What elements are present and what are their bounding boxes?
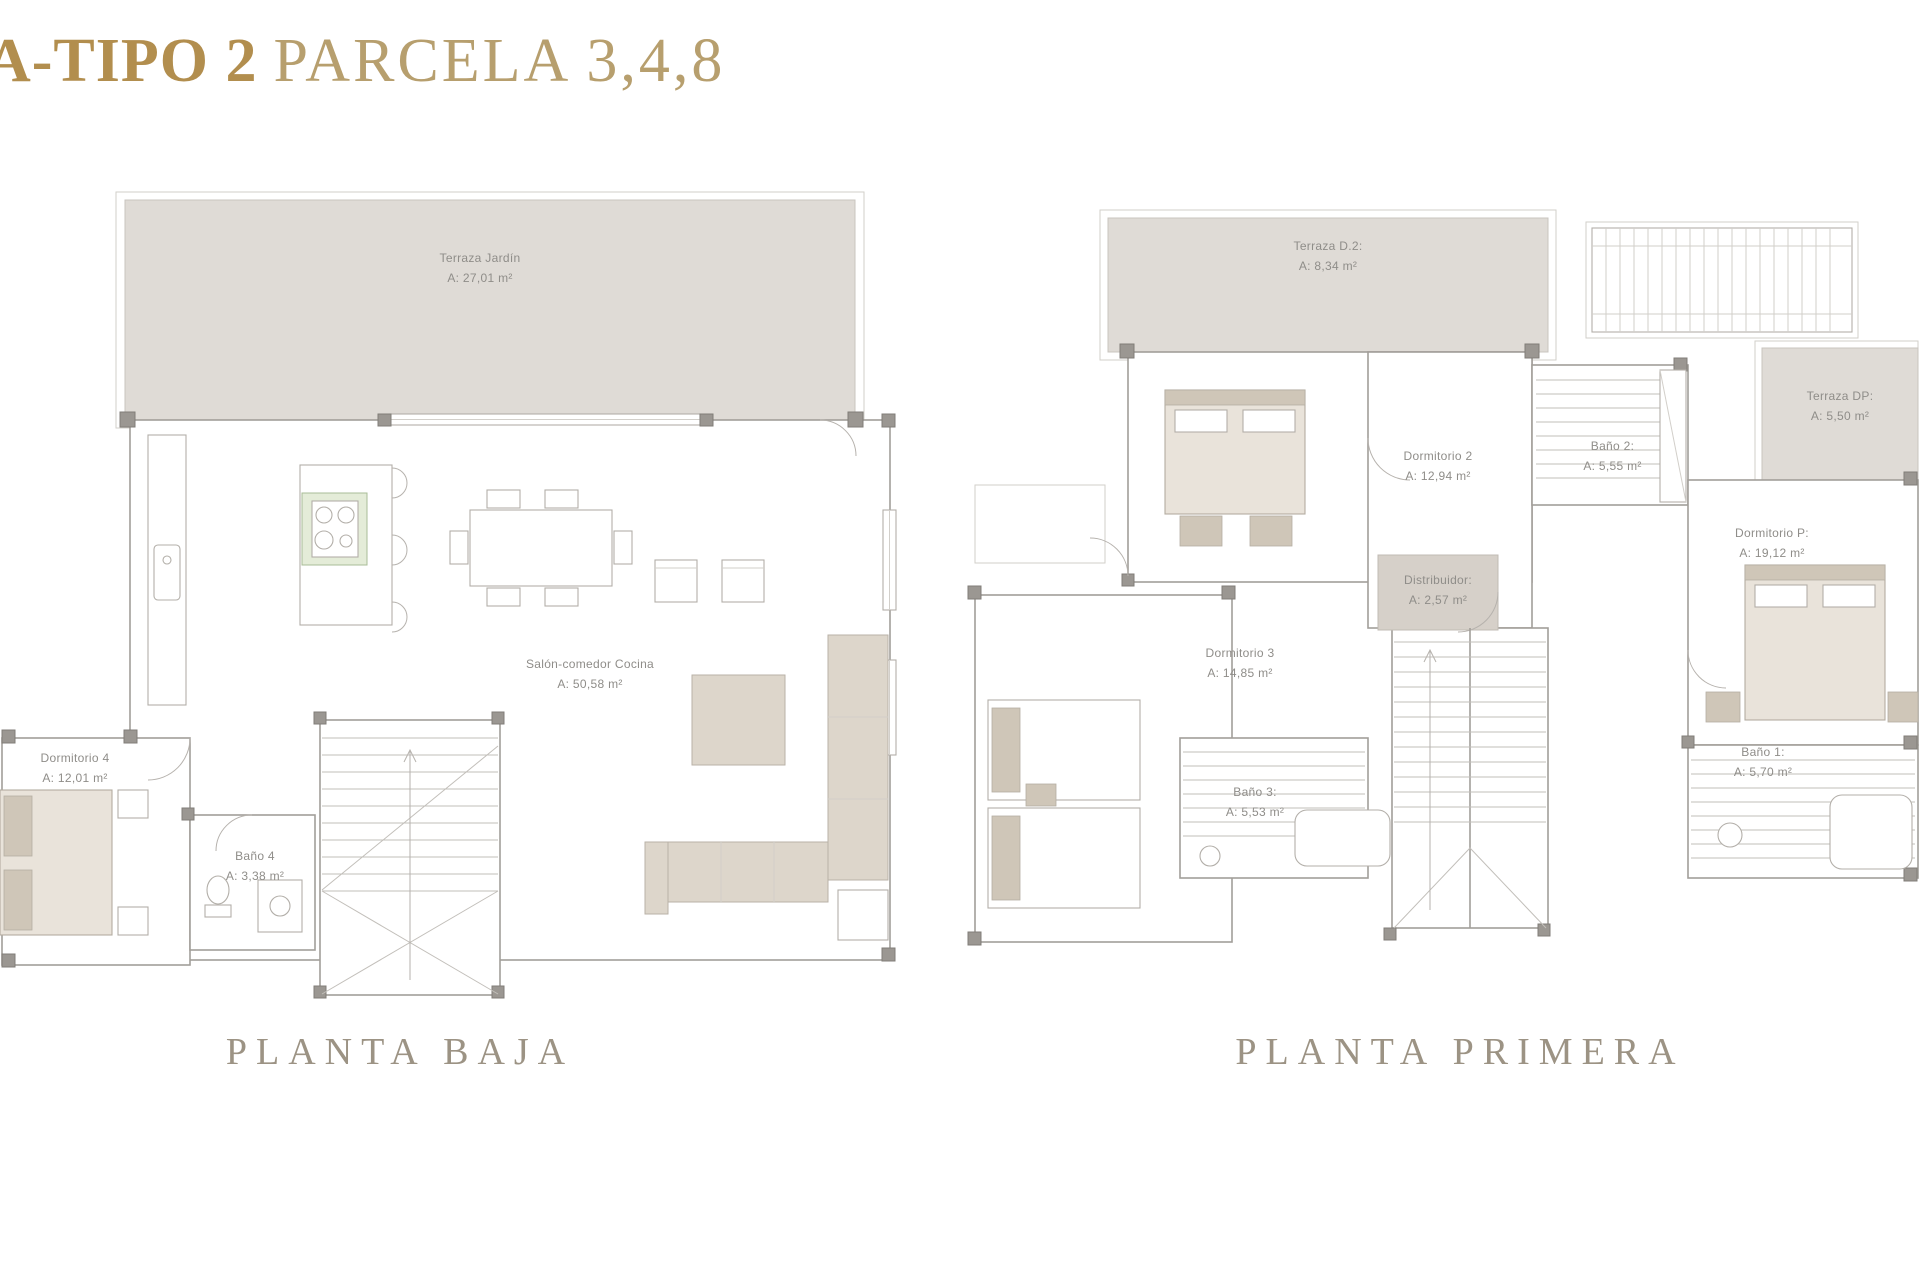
room-area: A: 19,12 m² [1739, 547, 1804, 560]
room-label-terraza-dp: Terraza DP: A: 5,50 m² [1765, 390, 1915, 423]
planta-baja-drawing [0, 190, 960, 1030]
room-name: Salón-comedor Cocina [526, 658, 654, 671]
room-area: A: 12,01 m² [42, 772, 107, 785]
room-label-terraza-jardin: Terraza Jardín A: 27,01 m² [390, 252, 570, 285]
floorplan-page: A-TIPO 2PARCELA 3,4,8 [0, 0, 1920, 1280]
page-title: A-TIPO 2PARCELA 3,4,8 [0, 26, 725, 97]
room-area: A: 2,57 m² [1409, 594, 1467, 607]
room-name: Terraza D.2: [1294, 240, 1363, 253]
room-area: A: 50,58 m² [557, 678, 622, 691]
room-name: Dormitorio 4 [41, 752, 110, 765]
room-label-salon: Salón-comedor Cocina A: 50,58 m² [500, 658, 680, 691]
room-name: Dormitorio P: [1735, 527, 1809, 540]
room-area: A: 12,94 m² [1405, 470, 1470, 483]
room-label-dormitorio4: Dormitorio 4 A: 12,01 m² [0, 752, 150, 785]
page-title-type: A-TIPO 2 [0, 27, 258, 95]
room-label-bano3: Baño 3: A: 5,53 m² [1180, 786, 1330, 819]
coffee-table [692, 675, 785, 765]
room-name: Distribuidor: [1404, 574, 1472, 587]
room-name: Baño 4 [235, 850, 275, 863]
room-area: A: 5,53 m² [1226, 806, 1284, 819]
room-label-dormitorio2: Dormitorio 2 A: 12,94 m² [1358, 450, 1518, 483]
room-name: Baño 2: [1591, 440, 1634, 453]
room-name: Baño 3: [1233, 786, 1276, 799]
terraza-d2-area [1100, 210, 1556, 360]
room-label-terraza-d2: Terraza D.2: A: 8,34 m² [1248, 240, 1408, 273]
room-label-dormitorioP: Dormitorio P: A: 19,12 m² [1692, 527, 1852, 560]
room-label-distribuidor: Distribuidor: A: 2,57 m² [1377, 574, 1499, 607]
room-area: A: 5,50 m² [1811, 410, 1869, 423]
room-area: A: 8,34 m² [1299, 260, 1357, 273]
cooktop-icon [312, 501, 358, 557]
caption-planta-baja: PLANTA BAJA [150, 1030, 650, 1074]
kitchen-island [300, 465, 407, 632]
room-name: Terraza DP: [1807, 390, 1874, 403]
room-name: Terraza Jardín [440, 252, 521, 265]
room-label-bano4: Baño 4 A: 3,38 m² [180, 850, 330, 883]
room-area: A: 5,55 m² [1583, 460, 1641, 473]
room-area: A: 14,85 m² [1207, 667, 1272, 680]
kitchen-counter [148, 435, 186, 705]
terraza-jardin-area [116, 192, 864, 428]
room-area: A: 3,38 m² [226, 870, 284, 883]
room-label-dormitorio3: Dormitorio 3 A: 14,85 m² [1160, 647, 1320, 680]
page-title-parcela: PARCELA 3,4,8 [274, 27, 726, 95]
pergola [1586, 222, 1858, 338]
room-name: Dormitorio 3 [1206, 647, 1275, 660]
room-name: Dormitorio 2 [1404, 450, 1473, 463]
room-area: A: 5,70 m² [1734, 766, 1792, 779]
room-label-bano1: Baño 1: A: 5,70 m² [1688, 746, 1838, 779]
room-area: A: 27,01 m² [447, 272, 512, 285]
caption-planta-primera: PLANTA PRIMERA [1140, 1030, 1780, 1074]
room-name: Baño 1: [1741, 746, 1784, 759]
room-label-bano2: Baño 2: A: 5,55 m² [1535, 440, 1690, 473]
